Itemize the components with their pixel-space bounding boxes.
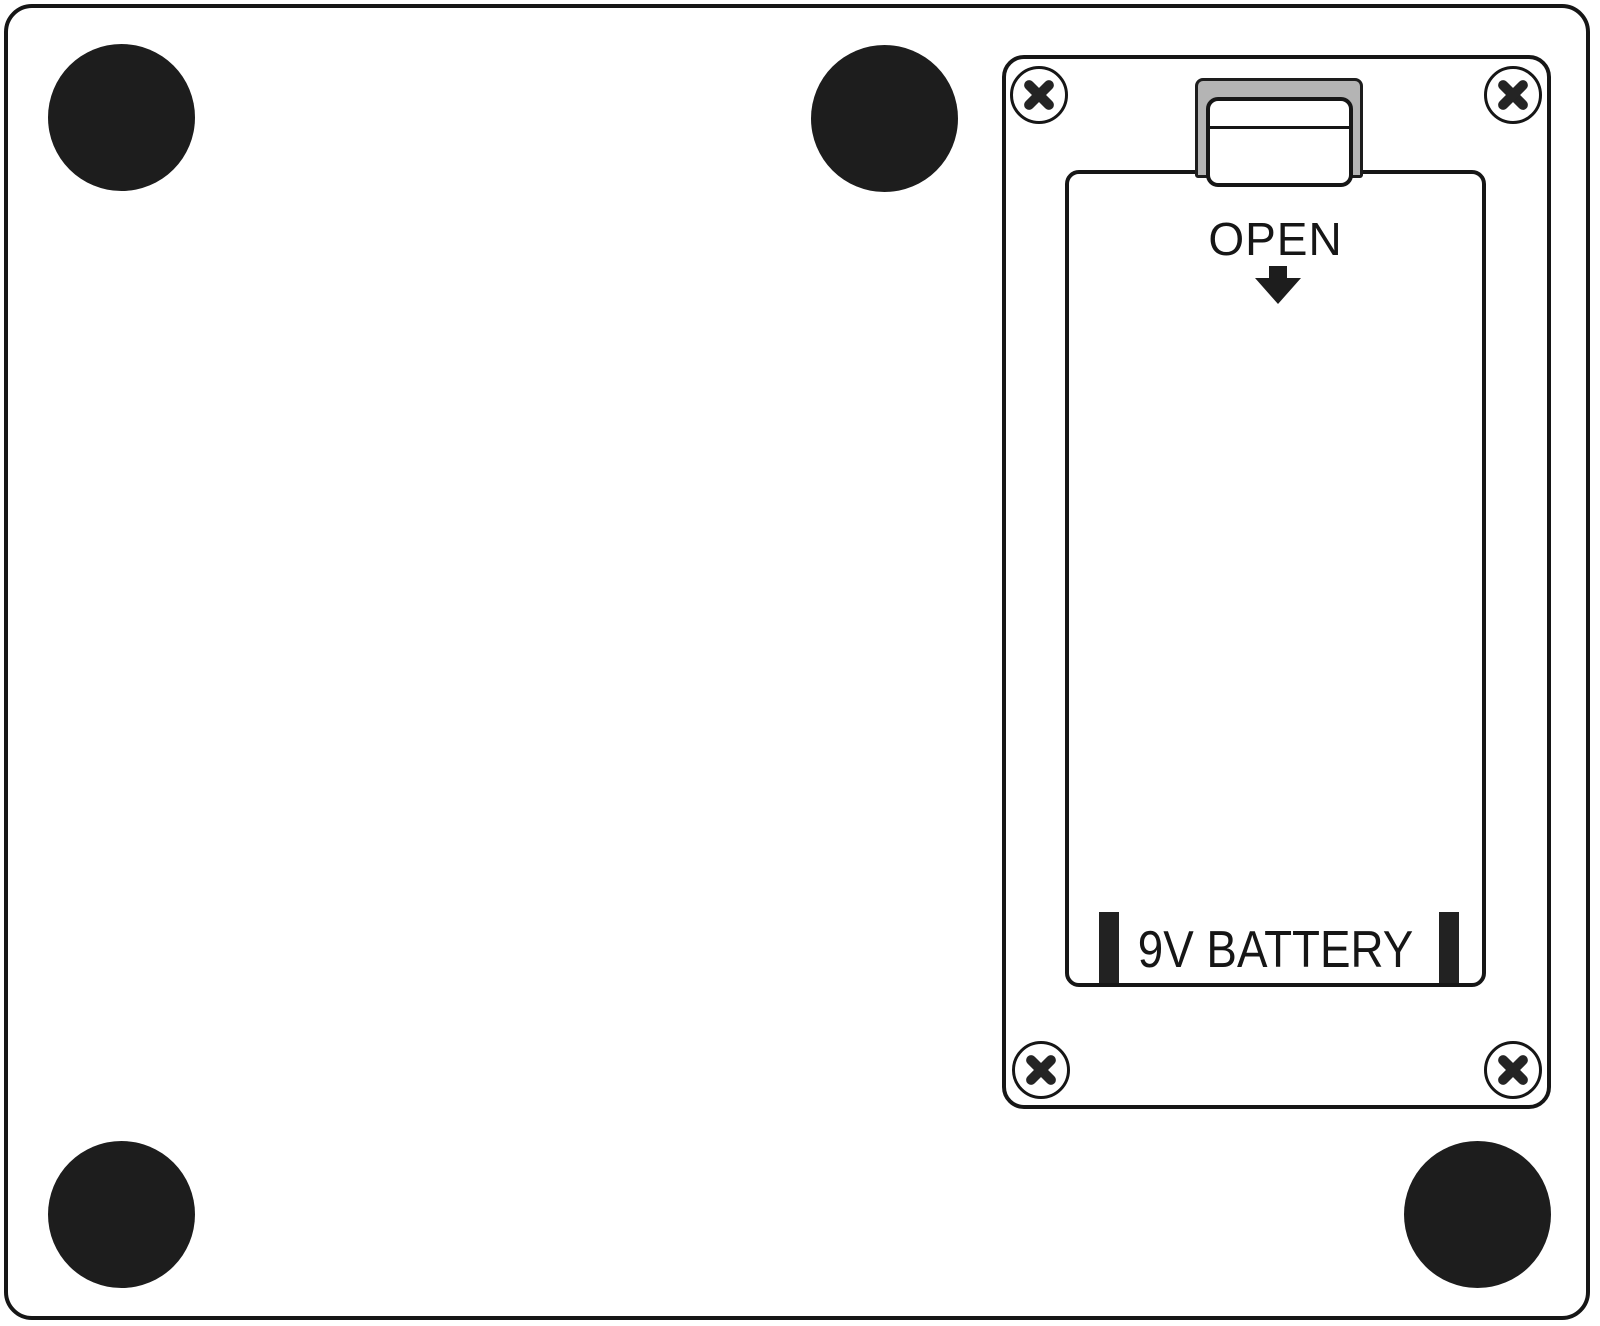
battery-compartment-plate: OPEN 9V BATTERY	[1002, 55, 1551, 1109]
latch-grip-line	[1210, 126, 1349, 129]
latch-tab	[1206, 97, 1353, 187]
open-label: OPEN	[1069, 216, 1482, 262]
device-back-outline: OPEN 9V BATTERY	[4, 4, 1590, 1320]
arrow-down-icon	[1255, 266, 1301, 304]
screw-icon	[1010, 66, 1068, 124]
rubber-foot-top-middle	[811, 45, 958, 192]
screw-icon	[1484, 66, 1542, 124]
screw-icon	[1012, 1041, 1070, 1099]
screw-icon	[1484, 1041, 1542, 1099]
rubber-foot-bottom-right	[1404, 1141, 1551, 1288]
rubber-foot-top-left	[48, 44, 195, 191]
battery-door: OPEN 9V BATTERY	[1065, 170, 1486, 987]
rubber-foot-bottom-left	[48, 1141, 195, 1288]
battery-type-label: 9V BATTERY	[1094, 924, 1457, 976]
diagram-canvas: OPEN 9V BATTERY	[0, 0, 1600, 1326]
